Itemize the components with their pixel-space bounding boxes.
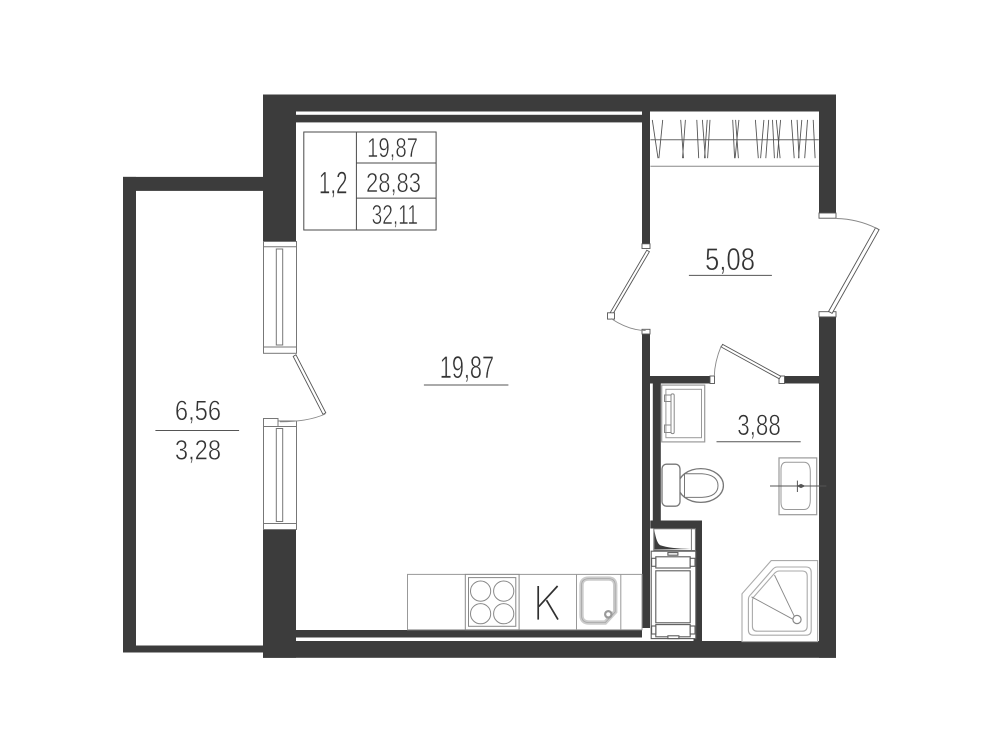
svg-text:5,08: 5,08 xyxy=(705,241,755,277)
svg-text:32,11: 32,11 xyxy=(372,199,418,230)
svg-text:1,2: 1,2 xyxy=(319,164,348,200)
svg-text:3,88: 3,88 xyxy=(737,409,781,442)
svg-text:19,87: 19,87 xyxy=(440,349,494,385)
svg-text:19,87: 19,87 xyxy=(367,132,418,163)
svg-text:6,56: 6,56 xyxy=(175,395,221,426)
svg-text:3,28: 3,28 xyxy=(175,435,221,466)
svg-text:28,83: 28,83 xyxy=(366,167,421,198)
